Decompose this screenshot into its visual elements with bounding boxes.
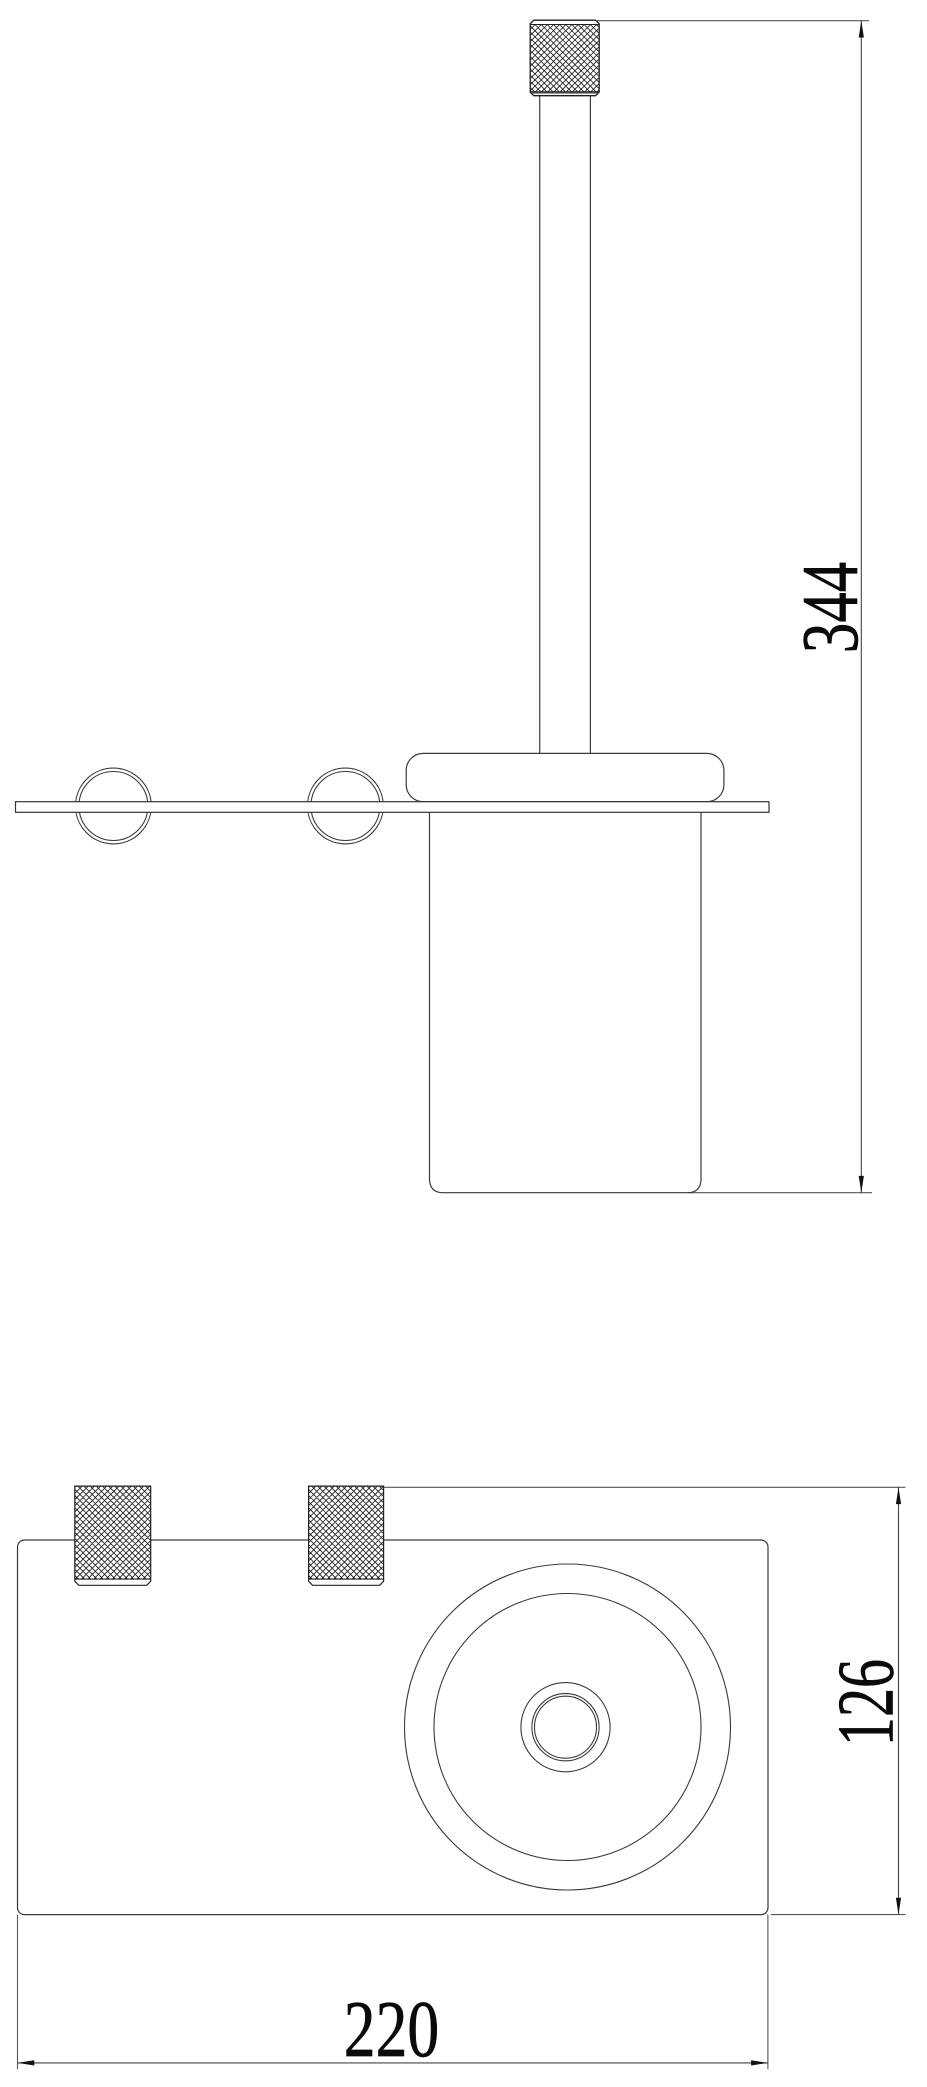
svg-text:220: 220 — [344, 1984, 439, 2074]
svg-text:126: 126 — [821, 1659, 911, 1746]
svg-text:344: 344 — [786, 562, 875, 653]
